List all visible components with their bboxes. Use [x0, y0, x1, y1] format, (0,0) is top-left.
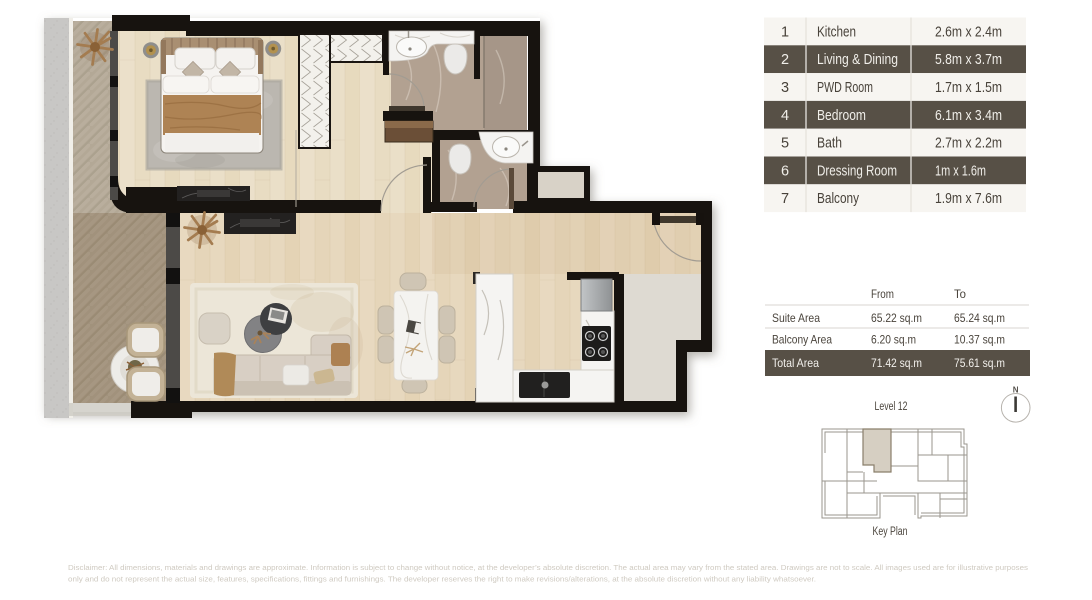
svg-text:10.37 sq.m: 10.37 sq.m: [954, 333, 1005, 347]
svg-text:2.7m x 2.2m: 2.7m x 2.2m: [935, 136, 1002, 152]
svg-text:65.24 sq.m: 65.24 sq.m: [954, 311, 1005, 325]
svg-text:Kitchen: Kitchen: [817, 24, 856, 40]
svg-text:To: To: [954, 287, 966, 301]
svg-text:2.6m x 2.4m: 2.6m x 2.4m: [935, 24, 1002, 40]
svg-text:1.9m x 7.6m: 1.9m x 7.6m: [935, 191, 1002, 207]
svg-text:Total Area: Total Area: [772, 356, 819, 370]
svg-text:Level 12: Level 12: [875, 401, 908, 413]
svg-text:2: 2: [781, 52, 789, 68]
svg-text:65.22 sq.m: 65.22 sq.m: [871, 311, 922, 325]
svg-text:6.20 sq.m: 6.20 sq.m: [871, 333, 916, 347]
svg-text:75.61 sq.m: 75.61 sq.m: [954, 356, 1005, 370]
svg-text:Key Plan: Key Plan: [873, 526, 908, 538]
svg-text:5.8m x 3.7m: 5.8m x 3.7m: [935, 52, 1002, 68]
svg-text:Dressing Room: Dressing Room: [817, 163, 897, 179]
svg-text:1: 1: [781, 24, 789, 40]
svg-text:Balcony Area: Balcony Area: [772, 333, 832, 347]
svg-text:Bath: Bath: [817, 136, 842, 152]
svg-text:5: 5: [781, 136, 789, 152]
svg-text:Disclaimer: All dimensions, ma: Disclaimer: All dimensions, materials an…: [68, 563, 1028, 572]
svg-text:6.1m x 3.4m: 6.1m x 3.4m: [935, 108, 1002, 124]
svg-text:From: From: [871, 287, 894, 301]
svg-text:7: 7: [781, 191, 789, 207]
svg-text:1.7m x 1.5m: 1.7m x 1.5m: [935, 80, 1002, 96]
svg-text:Suite Area: Suite Area: [772, 311, 820, 325]
svg-text:N: N: [1013, 386, 1019, 395]
svg-text:only and do not represent the: only and do not represent the actual siz…: [68, 575, 816, 584]
svg-text:Balcony: Balcony: [817, 191, 860, 207]
svg-text:Bedroom: Bedroom: [817, 108, 866, 124]
svg-text:1m x 1.6m: 1m x 1.6m: [935, 163, 986, 179]
svg-text:71.42 sq.m: 71.42 sq.m: [871, 356, 922, 370]
svg-text:4: 4: [781, 108, 789, 124]
svg-text:Living & Dining: Living & Dining: [817, 52, 898, 68]
svg-text:6: 6: [781, 163, 789, 179]
svg-text:PWD Room: PWD Room: [817, 80, 873, 96]
svg-text:3: 3: [781, 80, 789, 96]
